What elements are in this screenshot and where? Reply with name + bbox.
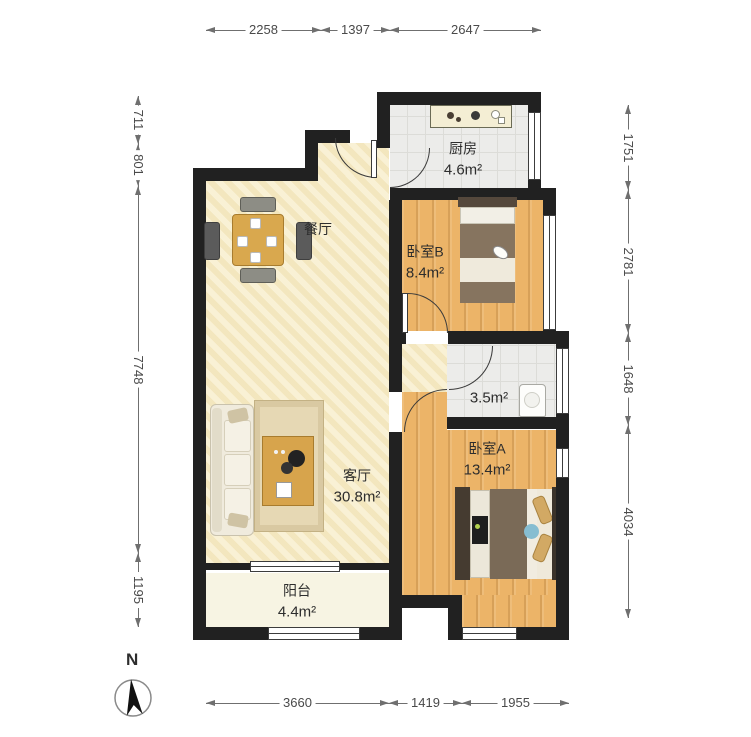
coffee-table-decor bbox=[281, 462, 293, 474]
washing-machine-lid bbox=[524, 392, 540, 408]
wall-kitchen-top bbox=[377, 92, 541, 105]
dining-bench bbox=[240, 197, 276, 212]
balcony-label: 阳台 4.4m² bbox=[278, 582, 316, 623]
dining-name: 餐厅 bbox=[304, 220, 332, 240]
dimension-value: 2781 bbox=[621, 243, 635, 280]
bed-b-blanket-end bbox=[460, 282, 515, 303]
bed-a-blanket bbox=[490, 489, 527, 579]
compass-north-label: N bbox=[126, 650, 138, 670]
tv-power-light bbox=[475, 524, 480, 529]
living-area: 30.8m² bbox=[334, 486, 381, 507]
wall-top-dining bbox=[193, 168, 318, 181]
dimension-value: 2258 bbox=[245, 23, 282, 37]
kitchen-window bbox=[528, 112, 541, 180]
dimension-value: 7748 bbox=[131, 351, 145, 388]
dining-label: 餐厅 bbox=[304, 220, 332, 240]
stove-burner-icon bbox=[471, 111, 480, 120]
bedroom-a-name: 卧室A bbox=[464, 440, 511, 460]
floor-plan: 厨房 4.6m² 卧室B 8.4m² 餐厅 3.5m² 卧室A 13.4m² 客… bbox=[0, 0, 751, 737]
dimension-value: 1648 bbox=[621, 361, 635, 398]
coffee-table-tray bbox=[276, 482, 292, 498]
dimension-value: 711 bbox=[131, 106, 145, 135]
bathroom-area: 3.5m² bbox=[470, 388, 508, 409]
dining-chair bbox=[204, 222, 220, 260]
plate-icon bbox=[250, 218, 261, 229]
dimension-value: 4034 bbox=[621, 503, 635, 540]
bedroom-a-side-window bbox=[556, 448, 569, 478]
bedroom-a-area: 13.4m² bbox=[464, 459, 511, 480]
bed-b-sheet bbox=[460, 258, 515, 282]
kitchen-label: 厨房 4.6m² bbox=[444, 140, 482, 181]
bedroom-b-name: 卧室B bbox=[406, 243, 444, 263]
bed-a-round-cushion bbox=[524, 524, 539, 539]
bedroom-a-wardrobe bbox=[455, 487, 470, 580]
dimension-value: 801 bbox=[131, 150, 145, 180]
bathroom-window bbox=[556, 348, 569, 414]
bedroom-a-bottom-window bbox=[462, 627, 517, 640]
dimension-value: 3660 bbox=[279, 696, 316, 710]
kitchen-name: 厨房 bbox=[444, 140, 482, 160]
living-name: 客厅 bbox=[334, 467, 381, 487]
wall-bathroom-bottom bbox=[447, 417, 569, 429]
bed-b-pillows bbox=[460, 207, 515, 224]
bed-b-headboard bbox=[458, 197, 517, 207]
plate-icon bbox=[237, 236, 248, 247]
dimension-value: 1955 bbox=[497, 696, 534, 710]
sofa-cushion bbox=[224, 420, 251, 452]
wall-bedroom-a-notch-v bbox=[448, 595, 462, 640]
bathroom-label: 3.5m² bbox=[470, 388, 508, 409]
balcony-window bbox=[268, 627, 360, 640]
plate-icon bbox=[266, 236, 277, 247]
bedroom-a-label: 卧室A 13.4m² bbox=[464, 440, 511, 481]
tv-icon bbox=[472, 516, 488, 544]
dimension-value: 1419 bbox=[407, 696, 444, 710]
dining-bench bbox=[240, 268, 276, 283]
sofa-back bbox=[212, 408, 222, 532]
coffee-table-decor bbox=[274, 450, 278, 454]
compass-icon bbox=[112, 674, 156, 722]
bed-a-headboard bbox=[552, 487, 556, 580]
wall-spine-upper bbox=[389, 200, 402, 392]
balcony-area: 4.4m² bbox=[278, 601, 316, 622]
sofa-cushion bbox=[224, 454, 251, 486]
coffee-table-decor bbox=[281, 450, 285, 454]
dimension-value: 1195 bbox=[131, 572, 145, 608]
sink-icon bbox=[498, 117, 505, 124]
dimension-value: 1397 bbox=[337, 23, 374, 37]
kitchen-area: 4.6m² bbox=[444, 159, 482, 180]
balcony-name: 阳台 bbox=[278, 582, 316, 602]
stove-burner-icon bbox=[447, 112, 454, 119]
dimension-value: 1751 bbox=[621, 129, 635, 166]
bedroom-b-window bbox=[543, 215, 556, 330]
entrance-door-leaf bbox=[371, 140, 377, 178]
bedroom-b-door-leaf bbox=[402, 293, 408, 333]
living-label: 客厅 30.8m² bbox=[334, 467, 381, 508]
bedroom-b-area: 8.4m² bbox=[406, 262, 444, 283]
plate-icon bbox=[250, 252, 261, 263]
dimension-value: 2647 bbox=[447, 23, 484, 37]
balcony-sliding-door bbox=[250, 561, 340, 572]
bedroom-b-label: 卧室B 8.4m² bbox=[406, 243, 444, 284]
stove-burner-icon bbox=[456, 117, 461, 122]
bedroom-a-floor-lower bbox=[462, 595, 556, 627]
